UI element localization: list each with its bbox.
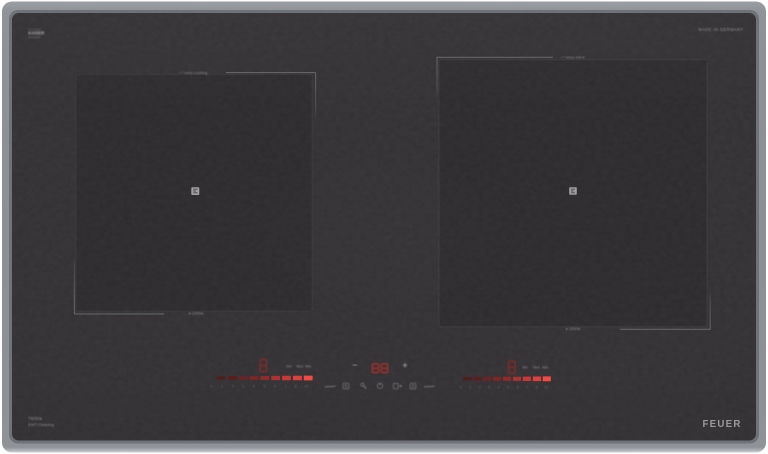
svg-text:ø 2200w: ø 2200w [566, 327, 581, 331]
svg-text:Med: Med [296, 364, 303, 368]
svg-text:8: 8 [295, 385, 297, 389]
svg-text:5: 5 [264, 385, 266, 389]
svg-text:Min: Min [286, 364, 292, 368]
svg-text:Med: Med [533, 365, 540, 369]
svg-text:4: 4 [498, 385, 500, 389]
svg-text:10: 10 [544, 385, 548, 389]
svg-text:2: 2 [479, 385, 481, 389]
svg-text:5: 5 [507, 385, 509, 389]
svg-text:10: 10 [304, 385, 308, 389]
svg-text:1: 1 [469, 385, 471, 389]
svg-text:3: 3 [488, 385, 490, 389]
svg-text:6: 6 [517, 385, 519, 389]
svg-text:1: 1 [221, 385, 223, 389]
svg-text:6: 6 [274, 385, 276, 389]
svg-text:Min: Min [522, 365, 528, 369]
svg-text:7: 7 [285, 385, 287, 389]
svg-text:ø 2200w: ø 2200w [189, 312, 204, 316]
svg-text:8: 8 [536, 385, 538, 389]
svg-text:4: 4 [253, 385, 255, 389]
svg-text:2: 2 [232, 385, 234, 389]
svg-text:∼* easy cooking: ∼* easy cooking [179, 71, 208, 75]
svg-text:7: 7 [526, 385, 528, 389]
svg-text:EWT Cleaning: EWT Cleaning [28, 422, 54, 427]
svg-text:0: 0 [211, 385, 213, 389]
svg-text:FEUER: FEUER [703, 419, 742, 430]
svg-text:∼* keep warm: ∼* keep warm [560, 56, 585, 60]
svg-text:3: 3 [242, 385, 244, 389]
svg-text:0: 0 [460, 385, 462, 389]
svg-text:MADE IN GERMANY: MADE IN GERMANY [698, 27, 743, 32]
svg-text:premium: premium [28, 35, 41, 39]
svg-text:7600w: 7600w [28, 416, 43, 421]
svg-text:Max: Max [542, 365, 549, 369]
svg-text:Max: Max [305, 364, 312, 368]
